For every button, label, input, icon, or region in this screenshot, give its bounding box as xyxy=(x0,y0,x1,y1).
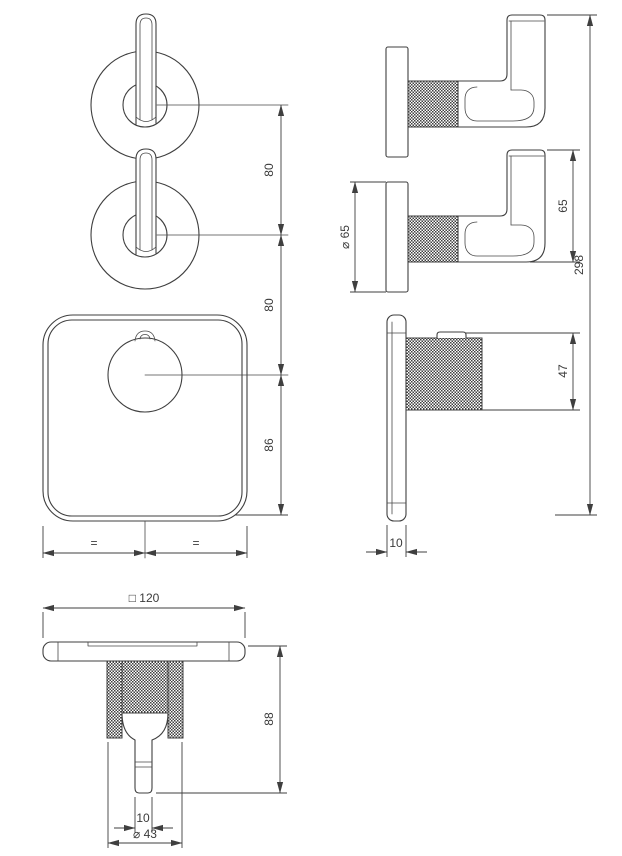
drawing-canvas: 80 80 86 = = ⌀ 65 65 xyxy=(0,0,622,856)
dim-knob-depth: 47 xyxy=(466,333,580,410)
side-view-handle-1 xyxy=(386,15,545,157)
front-view-handles xyxy=(91,14,288,289)
dim-label-knob-to-plate-edge: 86 xyxy=(262,438,276,452)
dim-flange-diameter: ⌀ 65 xyxy=(338,182,386,292)
knurled-band xyxy=(408,81,458,127)
dim-label-equal-left: = xyxy=(90,536,97,550)
dim-label-handle-spacing: 80 xyxy=(262,163,276,177)
dim-label-equal-right: = xyxy=(192,536,199,550)
lever-1 xyxy=(136,14,156,125)
lever-2 xyxy=(136,149,156,255)
flange-profile xyxy=(386,47,408,157)
knurl-wall-right xyxy=(168,661,183,738)
plate-outline-outer xyxy=(43,315,247,521)
dim-knob-diameter: ⌀ 43 xyxy=(108,742,182,848)
dim-label-plate-thickness: 10 xyxy=(389,536,403,550)
dim-label-handle-to-knob: 80 xyxy=(262,298,276,312)
dim-label-flange-diameter: ⌀ 65 xyxy=(338,225,352,249)
dim-label-lever-height: 65 xyxy=(556,199,570,213)
dim-label-knob-depth: 47 xyxy=(556,364,570,378)
side-view-handle-2 xyxy=(386,150,545,292)
knurl-center-section xyxy=(122,660,168,713)
dim-plate-width: □ 120 xyxy=(43,591,245,638)
plate-profile xyxy=(387,315,406,521)
dim-label-overall-height: 298 xyxy=(572,255,586,275)
knurl-wall-left xyxy=(107,661,122,738)
plate-outline-inner xyxy=(48,320,242,516)
front-view-plate xyxy=(43,315,288,558)
dim-label-overall-depth: 88 xyxy=(262,712,276,726)
valve-stem-section xyxy=(122,713,168,793)
knob-index-tab xyxy=(135,331,155,341)
dim-chain-vertical: 80 80 86 xyxy=(235,105,288,515)
dim-label-plate-width: □ 120 xyxy=(129,591,160,605)
dim-overall-height: 298 xyxy=(547,15,597,515)
technical-drawing: 80 80 86 = = ⌀ 65 65 xyxy=(0,0,622,856)
dim-label-stem-diameter: 10 xyxy=(136,811,150,825)
knurled-knob-profile xyxy=(406,338,482,410)
knob-index-tab-profile xyxy=(437,332,466,338)
section-view-plate-knob xyxy=(43,642,245,793)
dim-plate-thickness: 10 xyxy=(366,525,427,557)
lever-profile xyxy=(458,15,545,127)
plate-section-bar xyxy=(43,642,245,661)
dim-label-knob-diameter: ⌀ 43 xyxy=(133,827,157,841)
side-view-plate xyxy=(387,315,482,521)
